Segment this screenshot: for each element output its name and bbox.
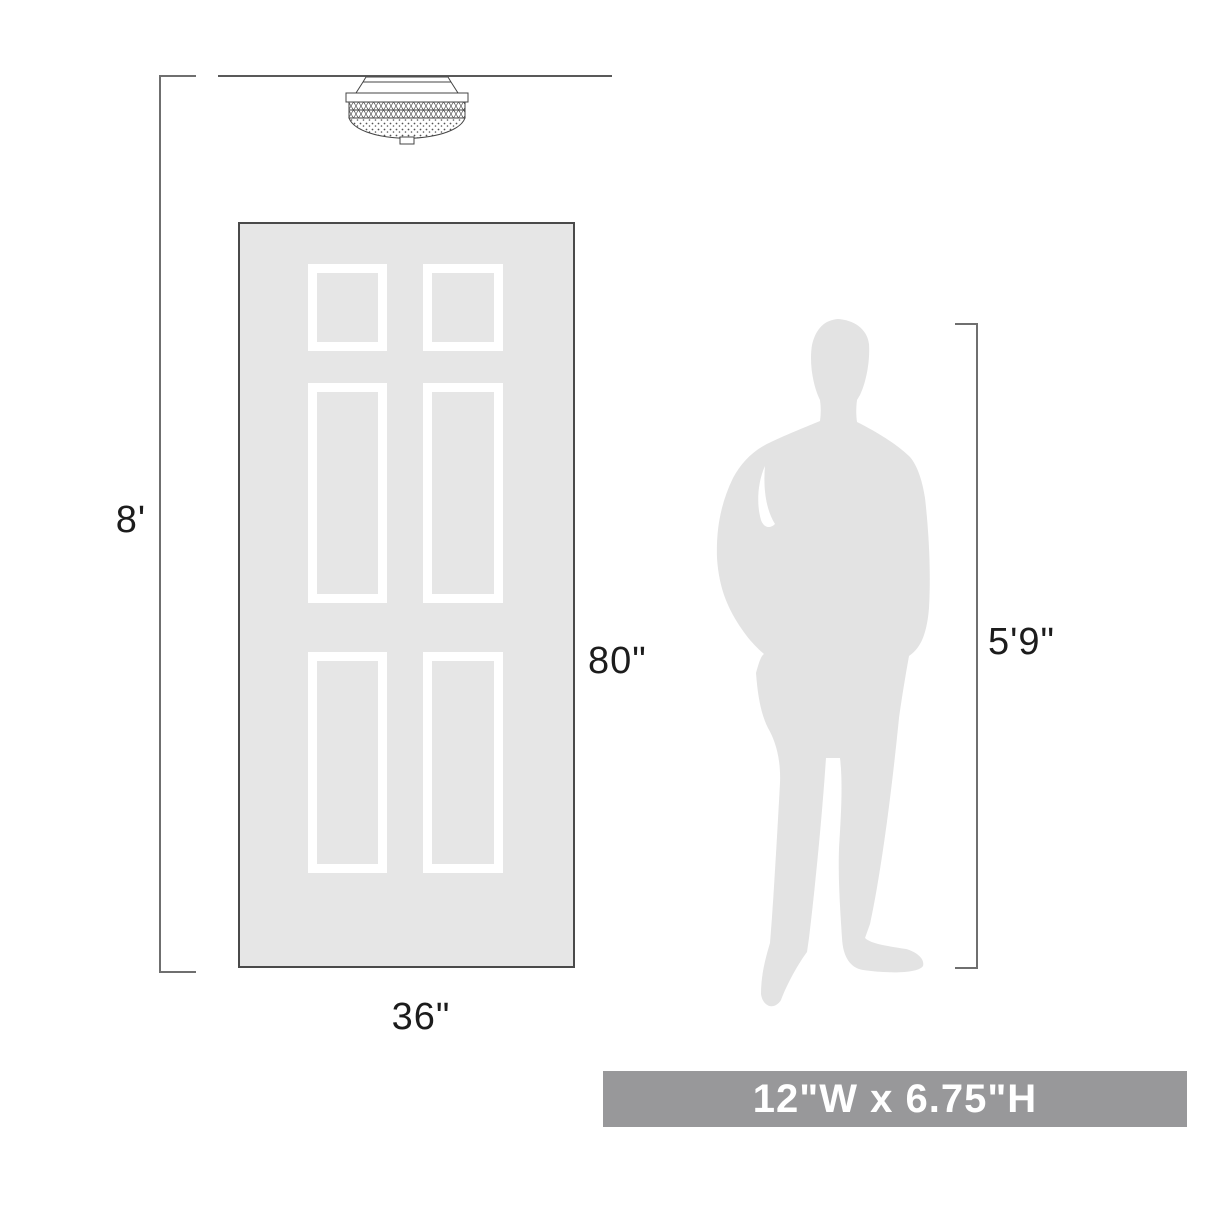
- person-height-dimension-line: [976, 323, 978, 969]
- ceiling-light-fixture: [341, 74, 471, 146]
- size-banner-text: 12"W x 6.75"H: [753, 1077, 1037, 1122]
- fixture-finial: [400, 137, 414, 144]
- fixture-dome: [349, 118, 465, 139]
- person-height-label: 5'9": [988, 621, 1055, 664]
- person-height-dimension-tick-bottom: [955, 967, 978, 969]
- fixture-rim: [346, 93, 468, 102]
- door-panel: [423, 652, 503, 873]
- ceiling-height-label: 8': [91, 499, 171, 542]
- ceiling-height-dimension-tick-bottom: [159, 971, 196, 973]
- door-width-label: 36": [366, 996, 476, 1039]
- door: [238, 222, 575, 968]
- door-panel: [308, 264, 387, 351]
- door-height-label: 80": [588, 640, 647, 683]
- door-panel: [423, 264, 503, 351]
- door-panel: [308, 383, 387, 603]
- fixture-canopy: [356, 77, 458, 93]
- person-silhouette: [713, 318, 935, 1008]
- person-height-dimension-tick-top: [955, 323, 978, 325]
- fixture-crystal-band: [349, 110, 465, 118]
- door-panel: [308, 652, 387, 873]
- ceiling-height-dimension-tick-top: [159, 75, 196, 77]
- fixture-crystal-band: [349, 102, 465, 110]
- scale-diagram: 8' 80" 36" 5'9" 12"W x 6.75"H: [0, 0, 1214, 1214]
- door-panel: [423, 383, 503, 603]
- size-banner: 12"W x 6.75"H: [603, 1071, 1187, 1127]
